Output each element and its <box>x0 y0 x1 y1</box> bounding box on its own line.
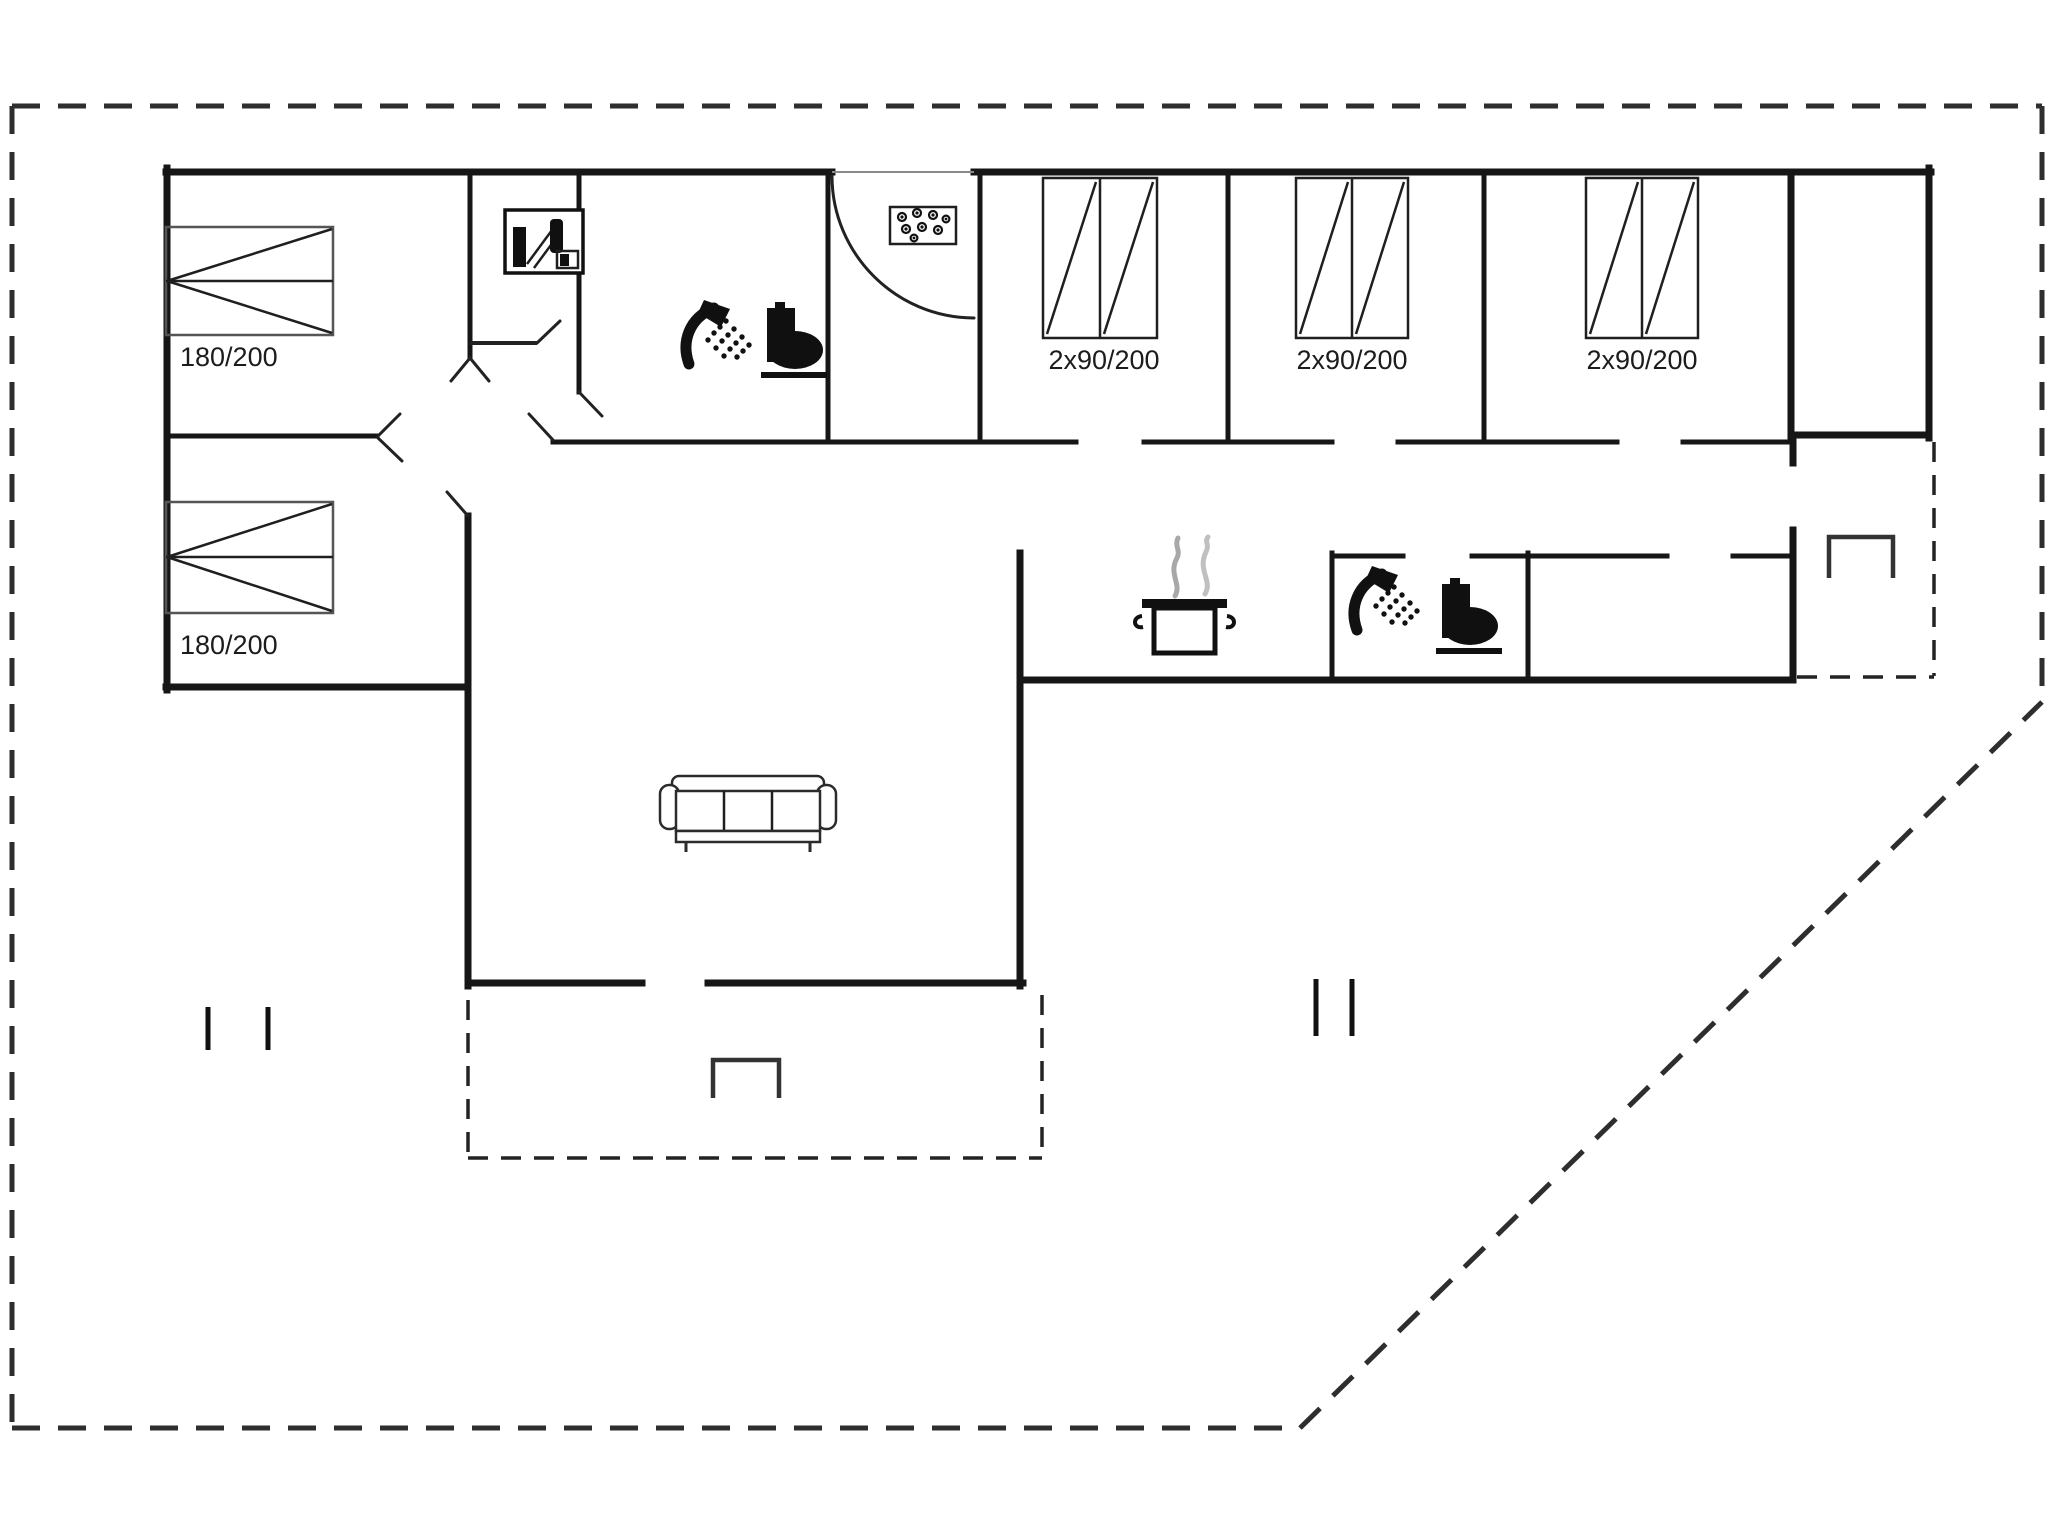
dot-tray-icon <box>890 207 956 244</box>
bed-2-diagonal-bottom <box>167 557 332 611</box>
wardrobe-2-diagonal-left <box>1300 182 1348 334</box>
sofa-icon <box>660 776 836 852</box>
floor-plan-page: 180/200 180/200 2x90/200 2x90/200 2x90/2… <box>0 0 2048 1536</box>
washing-machine-icon <box>505 210 583 273</box>
wardrobe-3-size-label: 2x90/200 <box>1586 345 1697 375</box>
bathroom1-door-leaf <box>579 392 602 416</box>
interior-walls <box>166 172 1790 680</box>
shower-spray-dots <box>705 318 751 359</box>
bed-2-size-label: 180/200 <box>180 630 278 660</box>
washing-machine-detail <box>560 254 569 266</box>
hall-door-leaf-right <box>470 358 489 381</box>
bathroom1-shower <box>686 300 752 364</box>
corridor-door-leaf <box>529 414 553 440</box>
floor-plan-drawing: 180/200 180/200 2x90/200 2x90/200 2x90/2… <box>0 0 2048 1536</box>
dot-tray-dots <box>898 209 949 241</box>
main-terrace-outline <box>468 995 1042 1158</box>
wardrobe-2: 2x90/200 <box>1296 178 1408 375</box>
sofa-front-rail <box>676 831 820 842</box>
entrance-door-swing <box>832 176 974 318</box>
pot-body <box>1154 608 1215 653</box>
exterior-walls <box>166 168 1931 986</box>
grill-icon <box>1829 537 1893 578</box>
door-marks <box>377 176 974 516</box>
bed-1-size-label: 180/200 <box>180 342 278 372</box>
pot-handle-left <box>1135 616 1143 627</box>
bathroom2-shower <box>1354 566 1420 630</box>
pot-handle-right <box>1226 616 1234 627</box>
steam-line <box>1174 538 1178 596</box>
living-room-door-leaf <box>447 492 468 516</box>
bed-2: 180/200 <box>166 502 333 660</box>
sofa-back <box>672 776 824 792</box>
shower-spray-dots <box>1373 584 1419 625</box>
wardrobe-3: 2x90/200 <box>1586 178 1698 375</box>
wardrobe-1: 2x90/200 <box>1043 178 1160 375</box>
grill-icon <box>713 1060 779 1098</box>
bed-2-diagonal-top <box>167 504 332 557</box>
bathroom2-toilet <box>1436 578 1502 654</box>
washing-machine-detail <box>513 227 526 267</box>
bed-1-diagonal-bottom <box>167 281 332 333</box>
window-tick-marks <box>208 979 1352 1050</box>
wardrobe-1-diagonal-left <box>1047 182 1096 334</box>
wardrobe-2-diagonal-right <box>1356 182 1404 334</box>
wardrobe-1-size-label: 2x90/200 <box>1048 345 1159 375</box>
bedroom1-door-leaf <box>377 414 400 437</box>
washing-machine-detail <box>550 219 563 253</box>
bathroom1-toilet <box>761 302 827 378</box>
wardrobe-2-size-label: 2x90/200 <box>1296 345 1407 375</box>
bed-1: 180/200 <box>166 227 333 372</box>
hall-door-leaf-left <box>451 358 470 381</box>
steam-line <box>1203 537 1208 594</box>
cooking-pot-icon <box>1135 537 1234 653</box>
plot-boundary-diagonal <box>1300 702 2042 1428</box>
wardrobe-3-diagonal-right <box>1646 182 1694 334</box>
sofa-seat <box>676 791 820 831</box>
utility-door-leaf <box>537 321 560 343</box>
plot-boundary <box>12 106 2042 1428</box>
bedroom2-door-leaf <box>377 437 402 461</box>
covered-terrace-outline <box>1797 442 1934 677</box>
wardrobe-1-diagonal-right <box>1104 182 1153 334</box>
bed-1-diagonal-top <box>167 229 332 281</box>
wardrobe-3-diagonal-left <box>1590 182 1638 334</box>
